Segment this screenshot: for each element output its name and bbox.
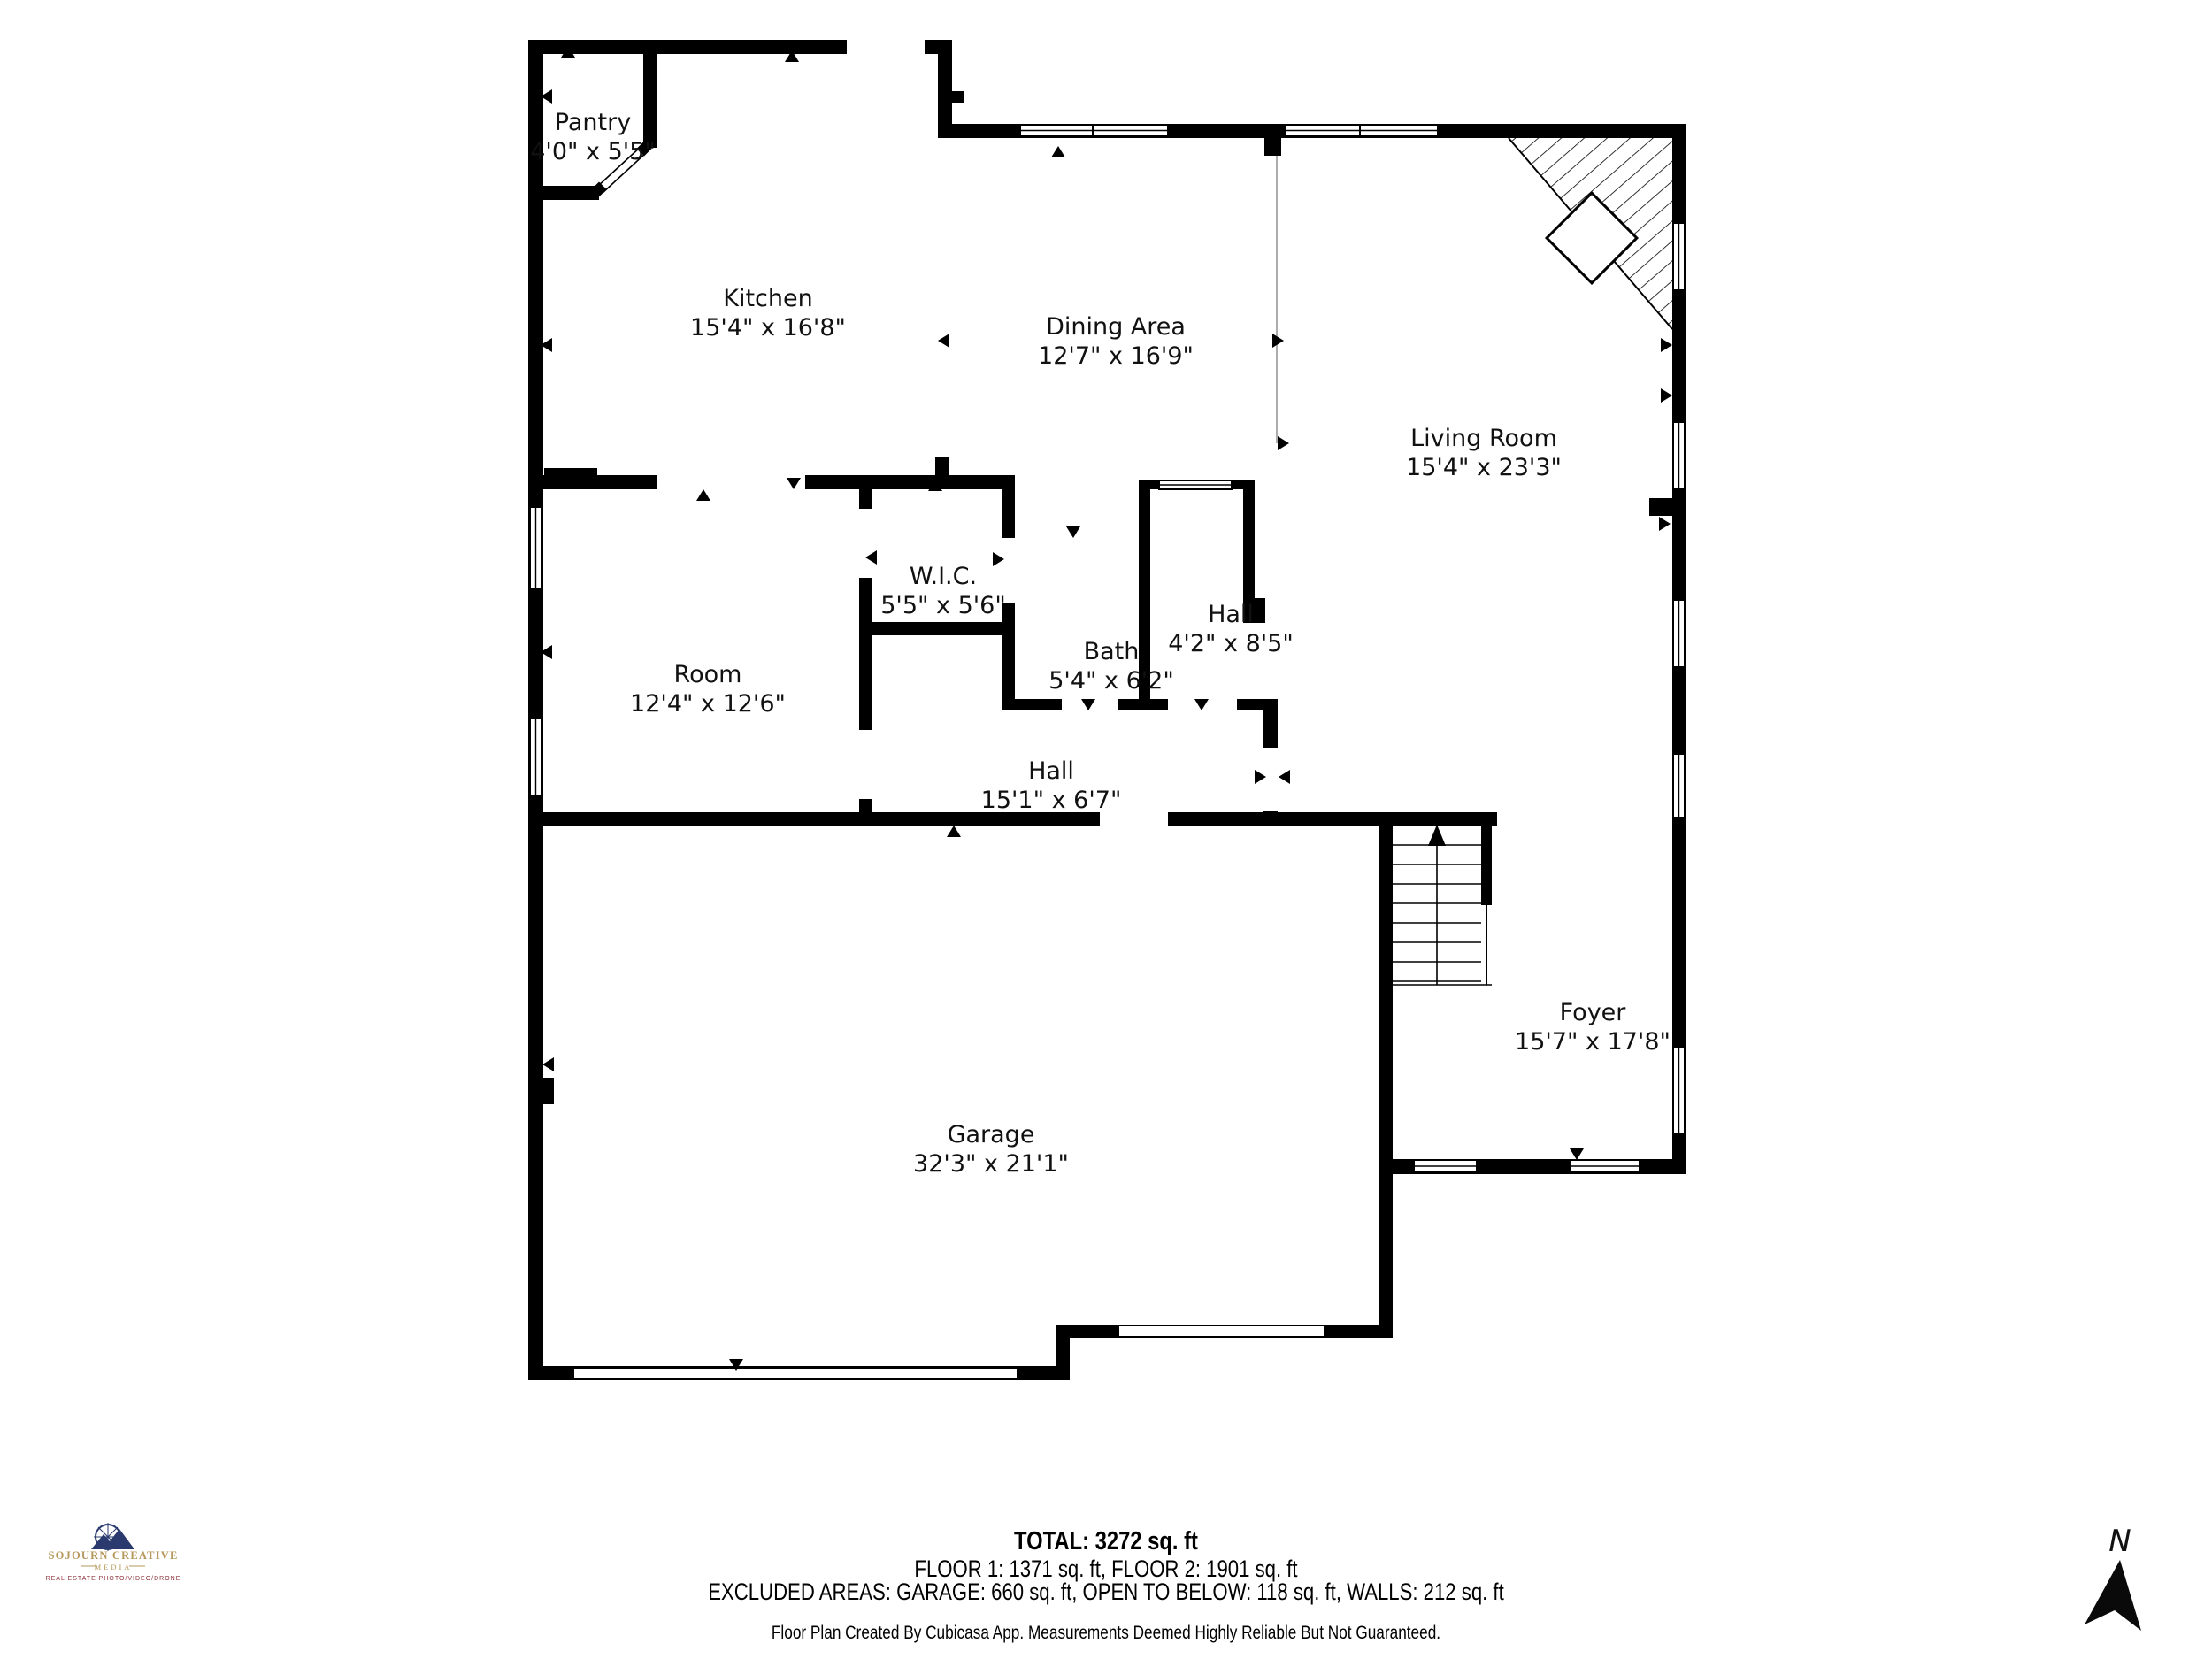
room-label-garage: Garage 32'3" x 21'1" [913,1120,1069,1179]
floorplan-drawing: N SOJOURN CREATIVE MEDIA REAL ESTATE PHO… [0,0,2212,1659]
room-dims: 4'0" x 5'5" [530,137,656,166]
compass-mountains-icon [91,1523,134,1551]
room-name: Hall [981,757,1122,786]
room-name: Kitchen [690,284,846,313]
room-label-living-room: Living Room 15'4" x 23'3" [1406,424,1562,482]
room-label-wic: W.I.C. 5'5" x 5'6" [880,562,1006,620]
floorplan-page: { "rooms": [ {"name":"Pantry","dims":"4'… [0,0,2212,1659]
room-name: W.I.C. [880,562,1006,591]
footer-excluded-areas: EXCLUDED AREAS: GARAGE: 660 sq. ft, OPEN… [199,1578,2013,1606]
room-name: Hall [1168,600,1294,629]
room-dims: 15'4" x 23'3" [1406,453,1562,482]
room-dims: 12'4" x 12'6" [630,689,786,718]
north-arrow: N [2085,1524,2141,1631]
corner-fireplace [1509,138,1672,329]
logo-line1: SOJOURN CREATIVE [48,1549,178,1562]
room-label-kitchen: Kitchen 15'4" x 16'8" [690,284,846,342]
room-label-room: Room 12'4" x 12'6" [630,660,786,718]
north-arrow-icon [2085,1560,2141,1631]
garage-door-and-entry-openings [573,1325,1325,1379]
north-label: N [2108,1524,2131,1559]
room-dims: 5'4" x 6'2" [1048,666,1174,695]
staircase [1393,825,1492,985]
room-label-foyer: Foyer 15'7" x 17'8" [1515,998,1671,1056]
room-label-hall-upper: Hall 4'2" x 8'5" [1168,600,1294,658]
room-name: Garage [913,1120,1069,1149]
room-dims: 15'7" x 17'8" [1515,1027,1671,1056]
room-dims: 15'4" x 16'8" [690,313,846,342]
room-name: Bath [1048,637,1174,666]
room-label-hall-lower: Hall 15'1" x 6'7" [981,757,1122,815]
room-label-dining-area: Dining Area 12'7" x 16'9" [1038,312,1194,371]
room-name: Living Room [1406,424,1562,453]
logo-line3: REAL ESTATE PHOTO/VIDEO/DRONE [46,1576,181,1582]
room-label-pantry: Pantry 4'0" x 5'5" [530,108,656,166]
stairs-up-arrow [1428,825,1446,846]
room-name: Pantry [530,108,656,137]
room-dims: 12'7" x 16'9" [1038,342,1194,371]
room-name: Dining Area [1038,312,1194,342]
room-dims: 5'5" x 5'6" [880,591,1006,620]
room-dims: 4'2" x 8'5" [1168,629,1294,658]
room-dims: 15'1" x 6'7" [981,786,1122,815]
footer-total: TOTAL: 3272 sq. ft [199,1527,2013,1556]
room-label-bath: Bath 5'4" x 6'2" [1048,637,1174,695]
room-name: Foyer [1515,998,1671,1027]
footer-disclaimer: Floor Plan Created By Cubicasa App. Meas… [199,1623,2013,1644]
logo-line2: MEDIA [95,1563,133,1571]
sojourn-creative-logo: SOJOURN CREATIVE MEDIA REAL ESTATE PHOTO… [46,1523,181,1582]
room-dims: 32'3" x 21'1" [913,1149,1069,1179]
room-name: Room [630,660,786,689]
